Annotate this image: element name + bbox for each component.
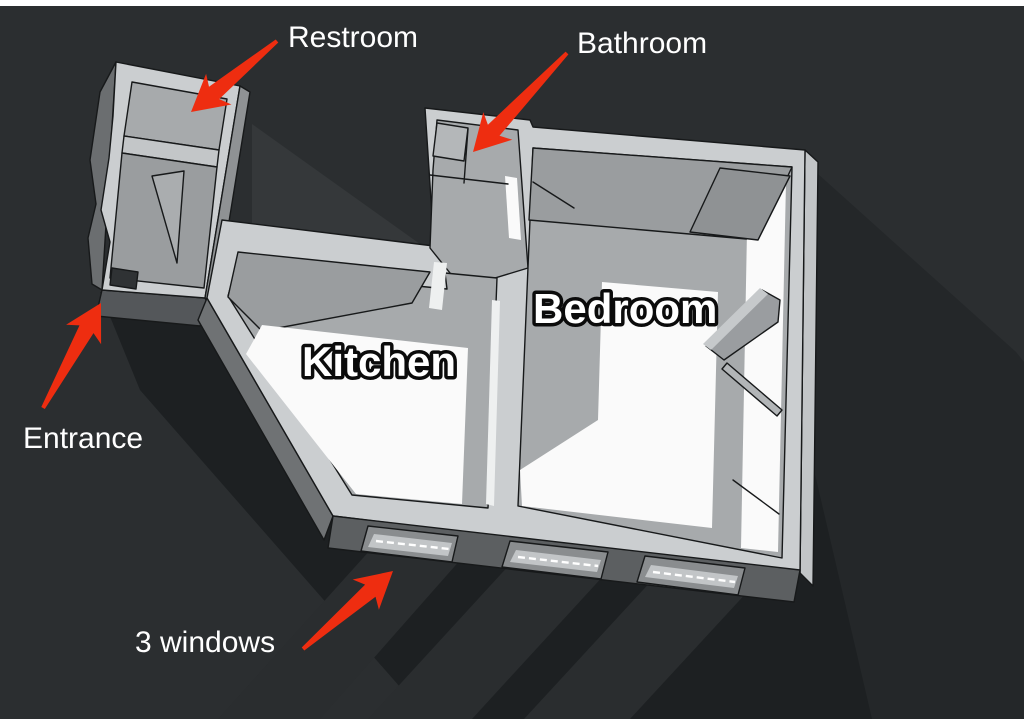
label-entrance: Entrance	[23, 422, 143, 455]
label-3-windows: 3 windows	[135, 626, 275, 659]
bathroom-shelf	[433, 123, 468, 161]
entrance-doorway	[110, 268, 138, 289]
label-kitchen: Kitchen	[302, 338, 456, 385]
label-bedroom: Bedroom	[533, 285, 717, 332]
floorplan-3d-view: Restroom Bathroom Entrance 3 windows Kit…	[0, 0, 1024, 719]
label-bathroom: Bathroom	[577, 27, 707, 60]
label-restroom: Restroom	[288, 21, 418, 54]
entrance-hall-floor	[110, 153, 217, 288]
screenshot-canvas: Restroom Bathroom Entrance 3 windows Kit…	[0, 0, 1024, 719]
